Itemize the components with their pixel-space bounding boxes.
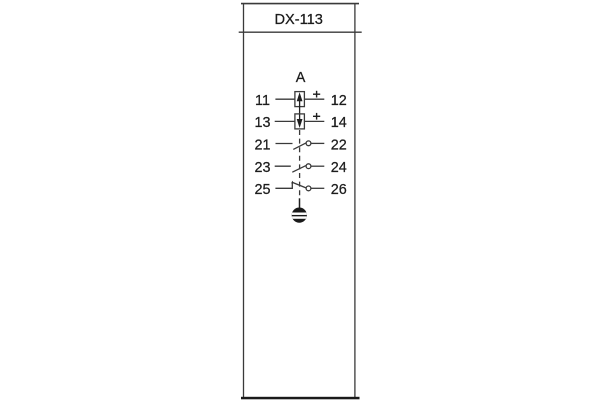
svg-text:13: 13 bbox=[254, 115, 270, 131]
svg-text:23: 23 bbox=[254, 160, 270, 176]
svg-text:24: 24 bbox=[331, 160, 347, 176]
svg-text:DX-113: DX-113 bbox=[274, 12, 322, 28]
svg-text:25: 25 bbox=[254, 182, 270, 198]
svg-text:14: 14 bbox=[331, 115, 347, 131]
svg-text:12: 12 bbox=[331, 93, 347, 109]
svg-text:22: 22 bbox=[331, 137, 347, 153]
svg-text:A: A bbox=[296, 70, 306, 86]
svg-text:11: 11 bbox=[255, 93, 270, 109]
svg-text:21: 21 bbox=[254, 137, 270, 153]
svg-text:26: 26 bbox=[331, 182, 347, 198]
